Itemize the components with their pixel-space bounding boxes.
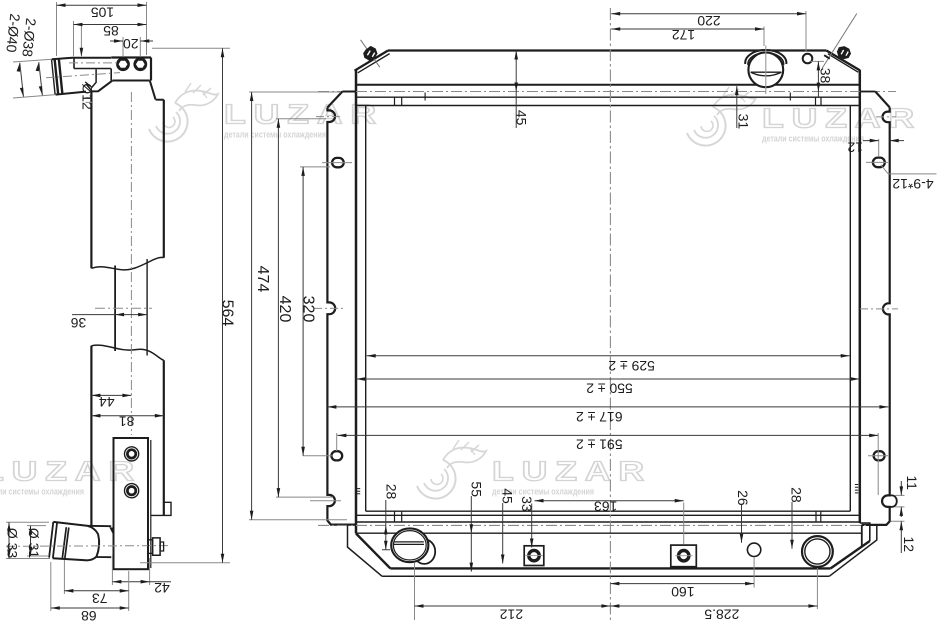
svg-text:160: 160	[671, 584, 695, 600]
svg-text:550 ± 2: 550 ± 2	[586, 380, 633, 396]
svg-text:85: 85	[103, 23, 119, 39]
svg-text:591 ± 2: 591 ± 2	[576, 437, 623, 453]
svg-text:31: 31	[736, 114, 752, 130]
svg-text:42: 42	[154, 580, 170, 596]
svg-text:320: 320	[300, 296, 317, 323]
svg-text:529 ± 2: 529 ± 2	[608, 358, 655, 374]
svg-text:420: 420	[276, 296, 293, 323]
svg-text:38: 38	[817, 68, 833, 84]
svg-text:20: 20	[123, 36, 139, 52]
svg-text:68: 68	[81, 608, 97, 624]
svg-text:28: 28	[788, 487, 804, 503]
svg-text:172: 172	[672, 27, 696, 43]
svg-text:45: 45	[500, 488, 516, 504]
svg-text:28: 28	[383, 484, 399, 500]
svg-text:212: 212	[500, 606, 524, 622]
svg-text:Ø 31: Ø 31	[26, 528, 42, 559]
svg-text:12: 12	[847, 140, 863, 156]
svg-text:12: 12	[901, 536, 917, 552]
svg-text:73: 73	[92, 591, 108, 607]
svg-text:55: 55	[468, 481, 484, 497]
svg-text:228.5: 228.5	[704, 606, 739, 622]
svg-text:36: 36	[71, 315, 87, 331]
svg-text:163: 163	[594, 498, 618, 514]
svg-text:11: 11	[904, 475, 920, 490]
svg-text:33: 33	[519, 496, 535, 512]
svg-text:81: 81	[119, 414, 135, 430]
svg-text:26: 26	[735, 490, 751, 506]
svg-text:44: 44	[99, 394, 115, 410]
svg-text:220: 220	[697, 13, 721, 29]
svg-text:617 ± 2: 617 ± 2	[576, 409, 623, 425]
svg-text:564: 564	[219, 300, 236, 327]
svg-text:474: 474	[254, 266, 271, 293]
svg-text:4-9*12: 4-9*12	[892, 176, 933, 192]
svg-text:Ø12: Ø12	[79, 83, 95, 110]
svg-text:45: 45	[514, 110, 530, 126]
svg-text:105: 105	[91, 5, 115, 21]
svg-text:Ø 33: Ø 33	[5, 528, 21, 559]
